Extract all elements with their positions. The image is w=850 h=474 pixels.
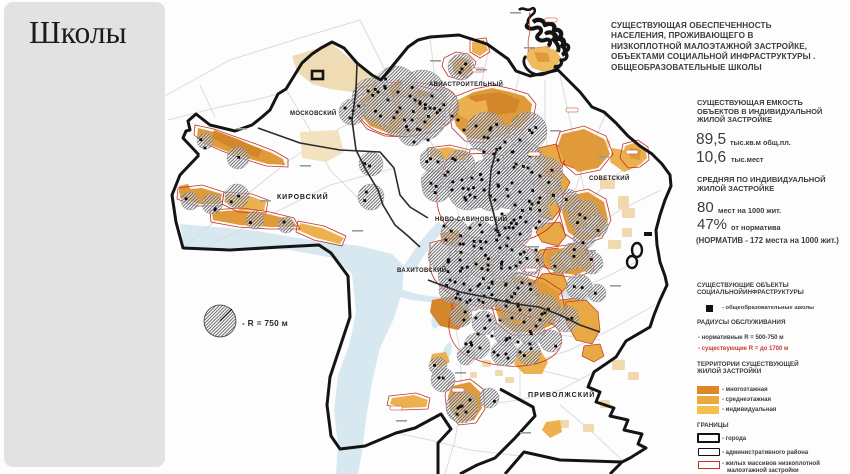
svg-text:ВАХИТОВСКИЙ: ВАХИТОВСКИЙ: [397, 266, 446, 274]
svg-text:КИРОВСКИЙ: КИРОВСКИЙ: [277, 192, 329, 201]
svg-text:НОВО-САВИНОВСКИЙ: НОВО-САВИНОВСКИЙ: [435, 215, 507, 223]
svg-text:МОСКОВСКИЙ: МОСКОВСКИЙ: [290, 109, 337, 117]
svg-text:ПРИВОЛЖСКИЙ: ПРИВОЛЖСКИЙ: [528, 390, 595, 399]
svg-text:СОВЕТСКИЙ: СОВЕТСКИЙ: [589, 174, 630, 182]
svg-text:- R = 750 м: - R = 750 м: [242, 318, 288, 328]
svg-text:АВИАСТРОИТЕЛЬНЫЙ: АВИАСТРОИТЕЛЬНЫЙ: [429, 80, 503, 88]
